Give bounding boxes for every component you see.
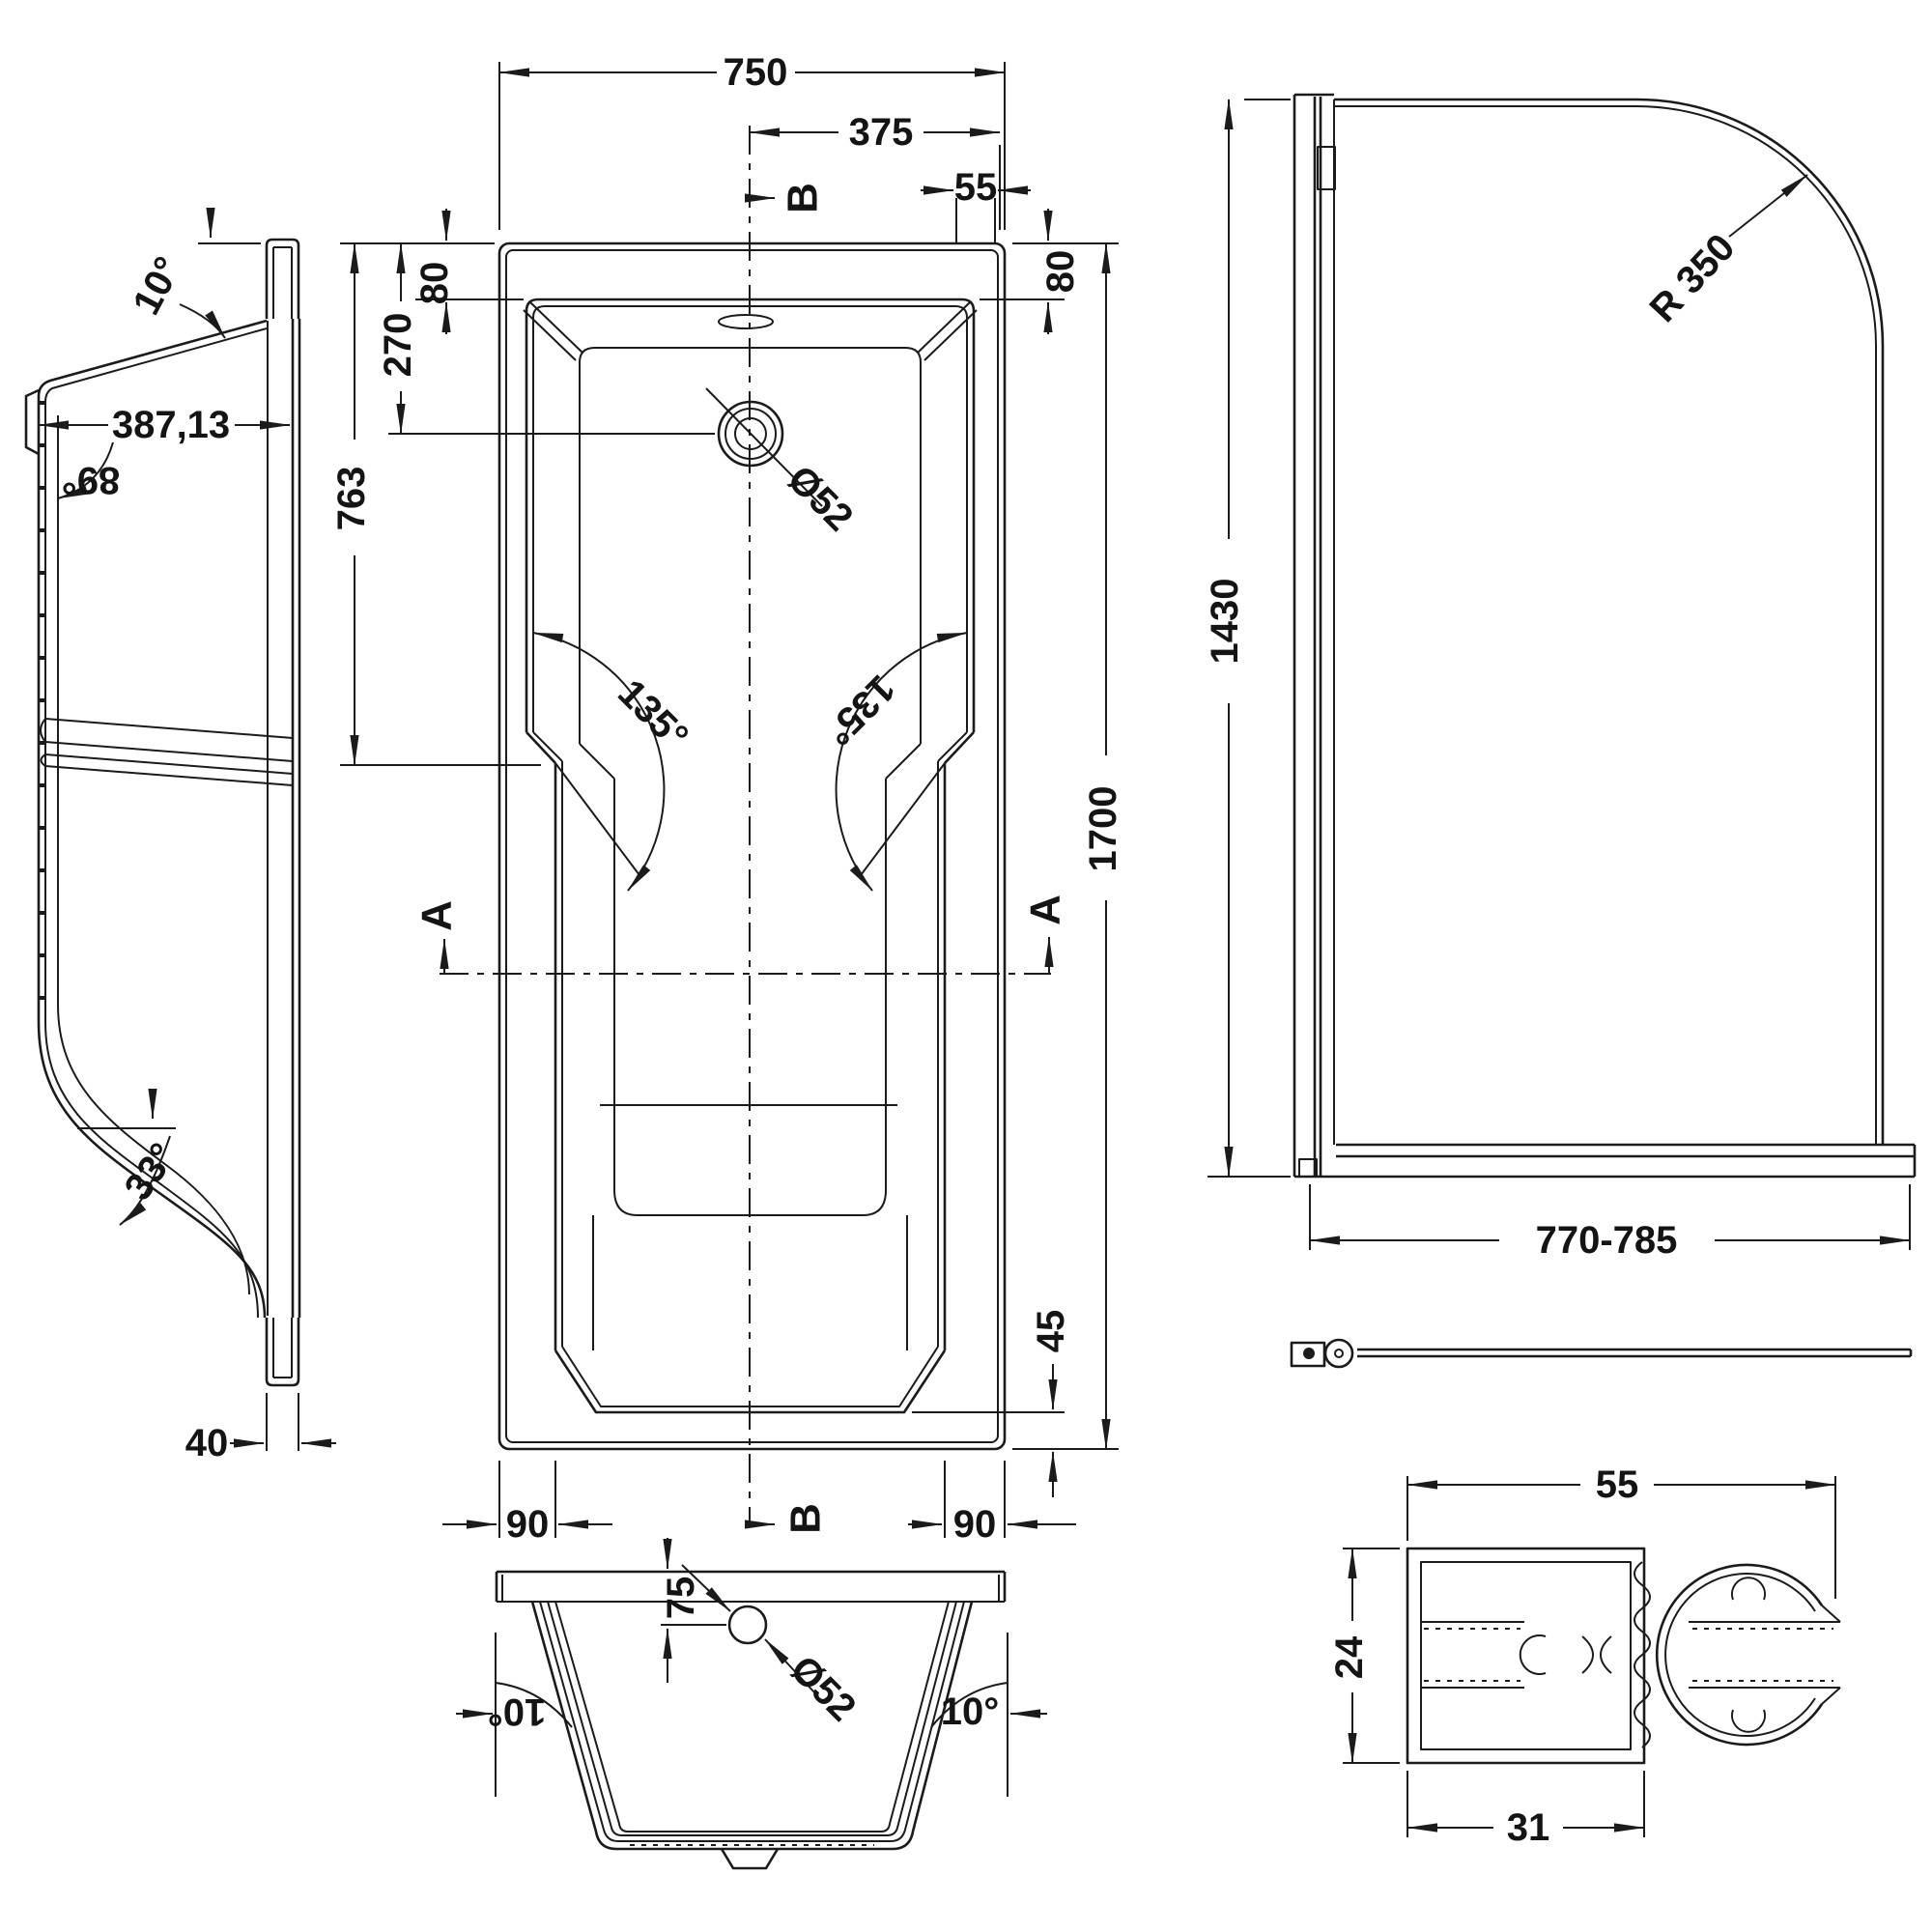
paper	[0, 0, 1932, 1932]
section-label-b-top: B	[780, 183, 827, 213]
dim-center-to-edge: 375	[849, 111, 914, 154]
dim-section-angle-left: 10°	[488, 1690, 547, 1733]
dim-section-depth: 75	[660, 1577, 702, 1620]
technical-drawing: 10° 387,13 89° 33° 40	[0, 0, 1932, 1932]
dim-foot-rim: 45	[1030, 1310, 1072, 1353]
dim-head-to-taper: 763	[330, 467, 373, 531]
dim-side-depth: 387,13	[112, 404, 230, 446]
dim-profile-height: 24	[1328, 1635, 1371, 1679]
dim-side-wall-angle: 89°	[62, 459, 121, 501]
dim-overall-length: 1700	[1082, 786, 1124, 872]
dim-side-base-offset: 40	[185, 1422, 229, 1464]
dim-profile-channel-width: 31	[1507, 1806, 1550, 1849]
dim-rim-left: 80	[413, 262, 456, 305]
dim-section-angle-right: 10°	[941, 1690, 1000, 1733]
dim-foot-corner-right: 90	[953, 1503, 997, 1546]
dim-drain-from-head: 270	[377, 313, 419, 378]
dim-overall-width: 750	[724, 51, 788, 94]
dim-corner-offset: 55	[954, 166, 998, 209]
dim-screen-height: 1430	[1204, 579, 1246, 665]
dim-profile-width: 55	[1596, 1463, 1639, 1506]
drawing-canvas: 10° 387,13 89° 33° 40	[0, 0, 1932, 1932]
section-label-a-right: A	[1022, 895, 1069, 925]
dim-foot-corner-left: 90	[506, 1503, 550, 1546]
section-label-a-left: A	[413, 900, 461, 931]
dim-rim-right: 80	[1039, 250, 1082, 294]
dim-screen-width-range: 770-785	[1536, 1219, 1678, 1262]
section-label-b-bottom: B	[782, 1503, 830, 1534]
